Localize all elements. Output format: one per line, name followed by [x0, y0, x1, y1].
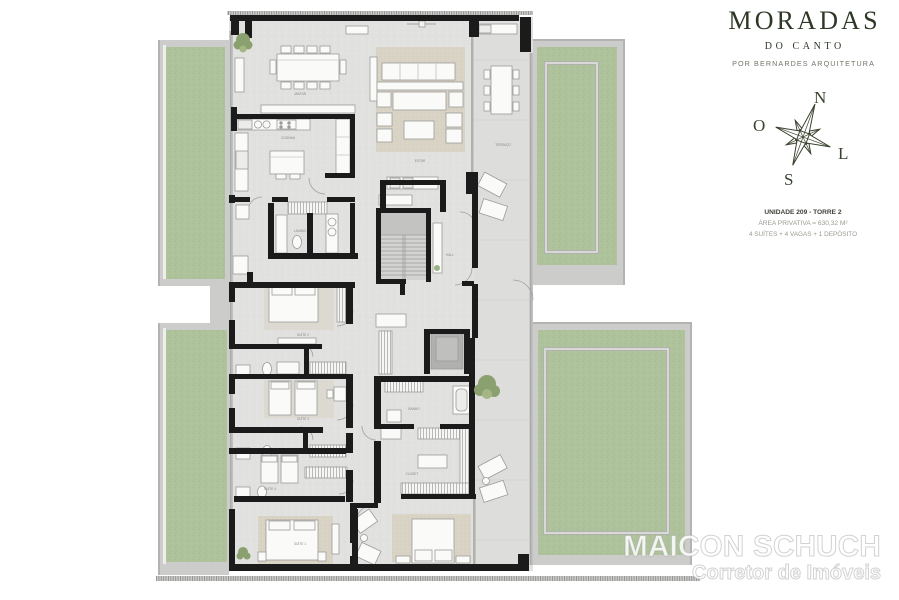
svg-text:SUÍTE 4: SUÍTE 4	[264, 487, 276, 491]
svg-text:SUÍTE 3: SUÍTE 3	[297, 417, 309, 421]
svg-text:COZINHA: COZINHA	[281, 136, 296, 140]
svg-text:ESTAR: ESTAR	[415, 159, 426, 163]
svg-text:N: N	[814, 88, 826, 107]
svg-text:LAVABO: LAVABO	[294, 229, 307, 233]
svg-text:L: L	[838, 144, 848, 163]
svg-text:BANHO: BANHO	[408, 407, 420, 411]
svg-text:TERRAÇO: TERRAÇO	[495, 143, 511, 147]
svg-text:SUÍTE 2: SUÍTE 2	[297, 333, 309, 337]
svg-text:SUÍTE 1: SUÍTE 1	[294, 542, 306, 546]
svg-text:CLOSET: CLOSET	[406, 472, 419, 476]
svg-text:O: O	[753, 116, 765, 135]
svg-text:JANTAR: JANTAR	[294, 92, 307, 96]
svg-text:HALL: HALL	[446, 253, 454, 257]
svg-text:S: S	[784, 170, 793, 189]
